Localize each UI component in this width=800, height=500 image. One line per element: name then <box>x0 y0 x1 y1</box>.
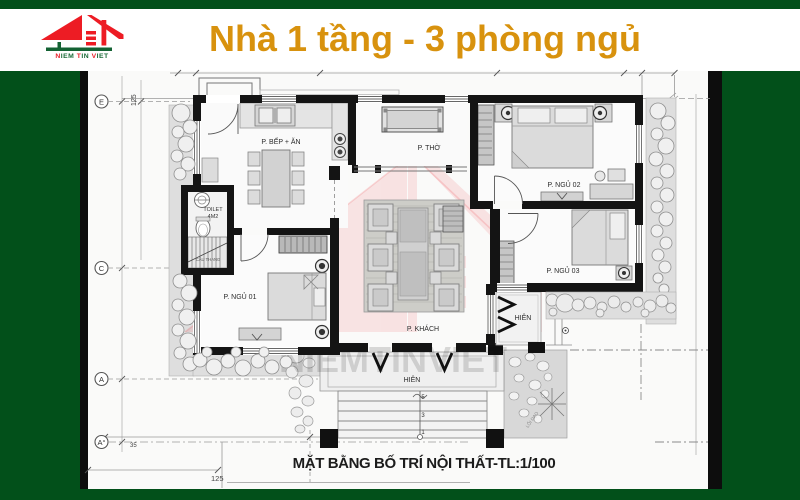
svg-text:P. NGỦ 03: P. NGỦ 03 <box>547 266 580 275</box>
svg-text:HIÊN: HIÊN <box>404 375 421 384</box>
svg-text:MẶT BẰNG BỐ TRÍ NỘI THẤT-TL:1/: MẶT BẰNG BỐ TRÍ NỘI THẤT-TL:1/100 <box>293 454 556 472</box>
svg-text:125: 125 <box>211 474 224 483</box>
svg-text:A: A <box>99 375 104 384</box>
svg-text:A°: A° <box>97 438 105 447</box>
svg-text:125: 125 <box>131 94 138 106</box>
svg-text:P. THỜ: P. THỜ <box>418 143 441 152</box>
svg-text:Nhà 1 tầng - 3 phòng ngủ: Nhà 1 tầng - 3 phòng ngủ <box>209 18 641 59</box>
svg-text:HIÊN: HIÊN <box>515 313 532 322</box>
svg-text:E: E <box>99 98 104 107</box>
svg-text:35: 35 <box>130 443 137 449</box>
svg-text:P. NGỦ 02: P. NGỦ 02 <box>548 180 581 189</box>
svg-text:C: C <box>99 264 105 273</box>
svg-text:NIEM TIN VIET: NIEM TIN VIET <box>55 53 109 60</box>
svg-text:P. KHÁCH: P. KHÁCH <box>407 324 439 333</box>
svg-text:4M2: 4M2 <box>208 214 219 220</box>
svg-text:TOILET: TOILET <box>203 207 223 213</box>
svg-text:P. NGỦ 01: P. NGỦ 01 <box>224 292 257 301</box>
svg-text:CẦU THANG: CẦU THANG <box>196 257 221 262</box>
